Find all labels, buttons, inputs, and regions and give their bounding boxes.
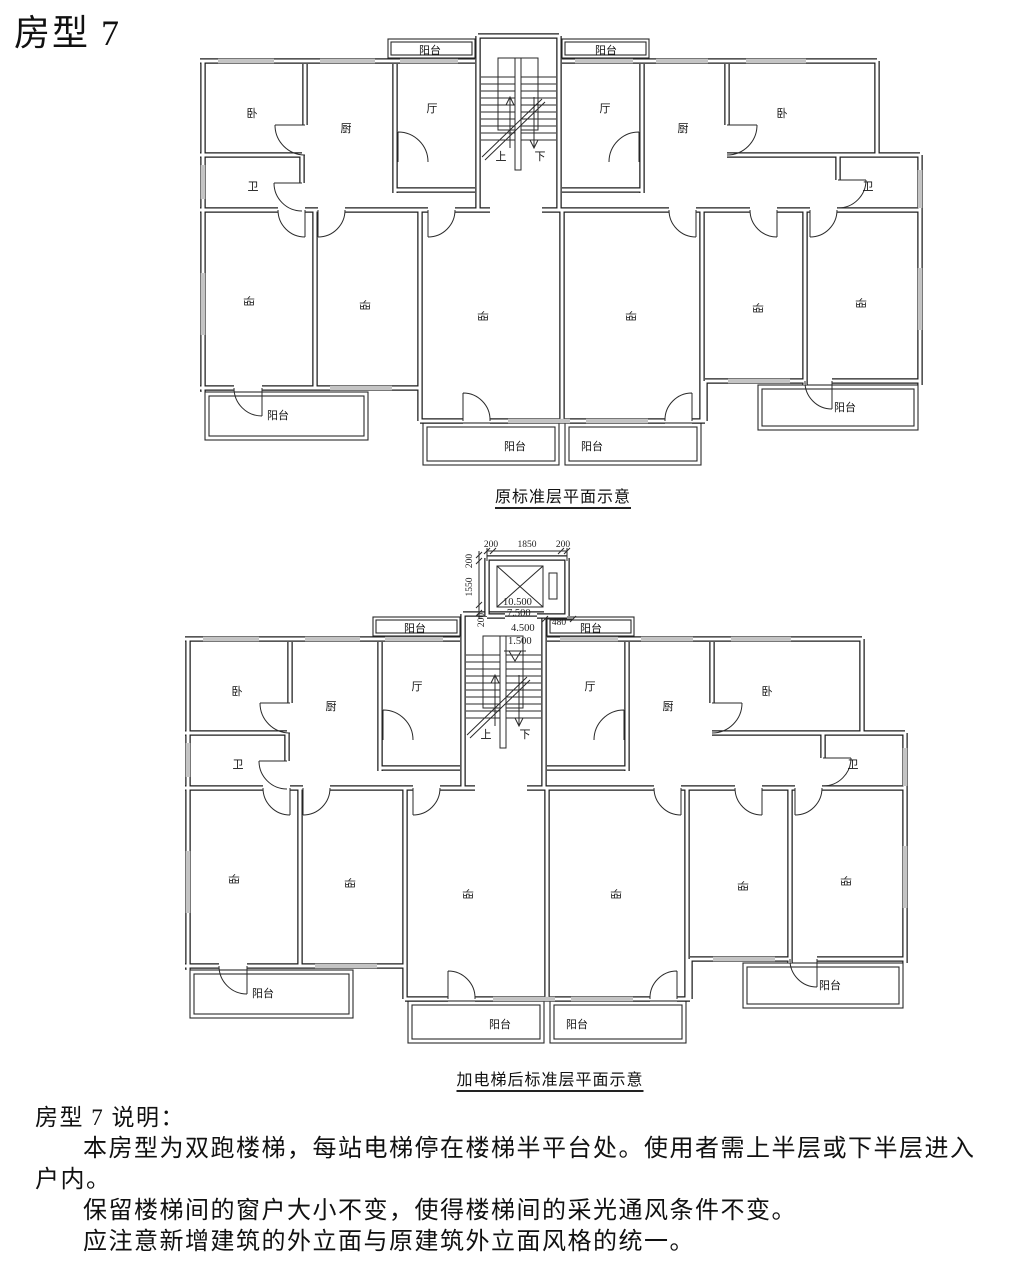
bedroom-label: 卧 <box>247 107 258 120</box>
caption-original-plan: 原标准层平面示意 <box>495 483 631 507</box>
balcony-label: 阳台 <box>504 439 526 453</box>
stair-down-label: 下 <box>535 151 546 163</box>
balcony-label: 阳台 <box>581 439 603 453</box>
window <box>586 419 648 423</box>
dim-left-top: 200 <box>465 554 475 569</box>
stop-level-4: 1.500 <box>508 636 532 647</box>
notes-line: 应注意新增建筑的外立面与原建筑外立面风格的统一。 <box>35 1227 1003 1258</box>
balcony-bottom-center-left-inner <box>427 427 555 461</box>
bedroom-label: 卧 <box>777 107 788 120</box>
stop-level-3: 4.500 <box>511 623 535 634</box>
bedroom-label: 卧 <box>477 311 490 322</box>
window <box>746 59 806 63</box>
dim-left-middle: 1550 <box>465 577 475 596</box>
balcony-label: 阳台 <box>834 400 856 414</box>
balcony-label: 阳台 <box>419 43 441 57</box>
window <box>656 59 708 63</box>
kitchen-label: 厨 <box>678 122 689 135</box>
caption-elevator-plan: 加电梯后标准层平面示意 <box>456 1066 643 1090</box>
notes-heading: 房型 7 说明： <box>35 1102 1003 1133</box>
bathroom-label: 卫 <box>863 181 874 193</box>
floor-plan-with-elevator: 200 1850 200 200 1550 200 480 10.500 7.5… <box>175 536 915 1056</box>
window <box>320 59 375 63</box>
window <box>201 165 205 199</box>
living-room-label: 厅 <box>600 103 611 115</box>
bedroom-label: 卧 <box>855 298 868 309</box>
window <box>400 59 458 63</box>
bedroom-label: 卧 <box>752 303 765 314</box>
caption-original-text: 原标准层平面示意 <box>495 489 631 509</box>
bathroom-label: 卫 <box>248 181 259 193</box>
page-title: 房型 7 <box>14 4 121 56</box>
bedroom-label: 卧 <box>359 300 372 311</box>
dim-gap: 480 <box>552 618 567 628</box>
floor-plan-original: 阳台 阳台 卧 厨 厅 厅 厨 卧 卫 卫 卧 卧 卧 卧 卧 卧 阳台 阳台 … <box>190 33 930 483</box>
stair-stringer <box>515 58 521 170</box>
kitchen-label: 厨 <box>341 122 352 135</box>
notes-line: 保留楼梯间的窗户大小不变，使得楼梯间的采光通风条件不变。 <box>35 1196 1003 1227</box>
notes-block: 房型 7 说明： 本房型为双跑楼梯，每站电梯停在楼梯半平台处。使用者需上半层或下… <box>35 1102 1003 1258</box>
caption-elevator-text: 加电梯后标准层平面示意 <box>456 1072 643 1092</box>
window <box>918 268 922 330</box>
bedroom-label: 卧 <box>243 296 256 307</box>
notes-line: 本房型为双跑楼梯，每站电梯停在楼梯半平台处。使用者需上半层或下半层进入 <box>35 1134 1003 1165</box>
plan-body-copy <box>185 614 907 1043</box>
window <box>728 379 790 383</box>
balcony-label: 阳台 <box>267 408 289 422</box>
window <box>330 386 392 390</box>
plan-body: 阳台 阳台 卧 厨 厅 厅 厨 卧 卫 卫 卧 卧 卧 卧 卧 卧 阳台 阳台 … <box>200 36 922 465</box>
living-room-label: 厅 <box>427 103 438 115</box>
stair-up-label: 上 <box>496 150 507 163</box>
window <box>218 59 274 63</box>
window <box>918 170 922 208</box>
stop-level-2: 7.500 <box>507 608 531 619</box>
elevator-counterweight <box>549 573 557 599</box>
drawing-sheet: 房型 7 <box>0 0 1024 1261</box>
balcony-bottom-center-left <box>423 423 559 465</box>
dim-left-bottom: 200 <box>477 613 487 628</box>
stop-level-1: 10.500 <box>503 597 532 608</box>
window <box>201 273 205 335</box>
doors <box>234 125 866 421</box>
window <box>575 59 633 63</box>
notes-line: 户内。 <box>35 1165 1003 1196</box>
balcony-label: 阳台 <box>595 43 617 57</box>
bedroom-label: 卧 <box>625 311 638 322</box>
dim-top-left: 200 <box>484 540 499 550</box>
window <box>508 419 570 423</box>
dim-top-right: 200 <box>556 540 571 550</box>
dim-top-middle: 1850 <box>518 540 537 550</box>
